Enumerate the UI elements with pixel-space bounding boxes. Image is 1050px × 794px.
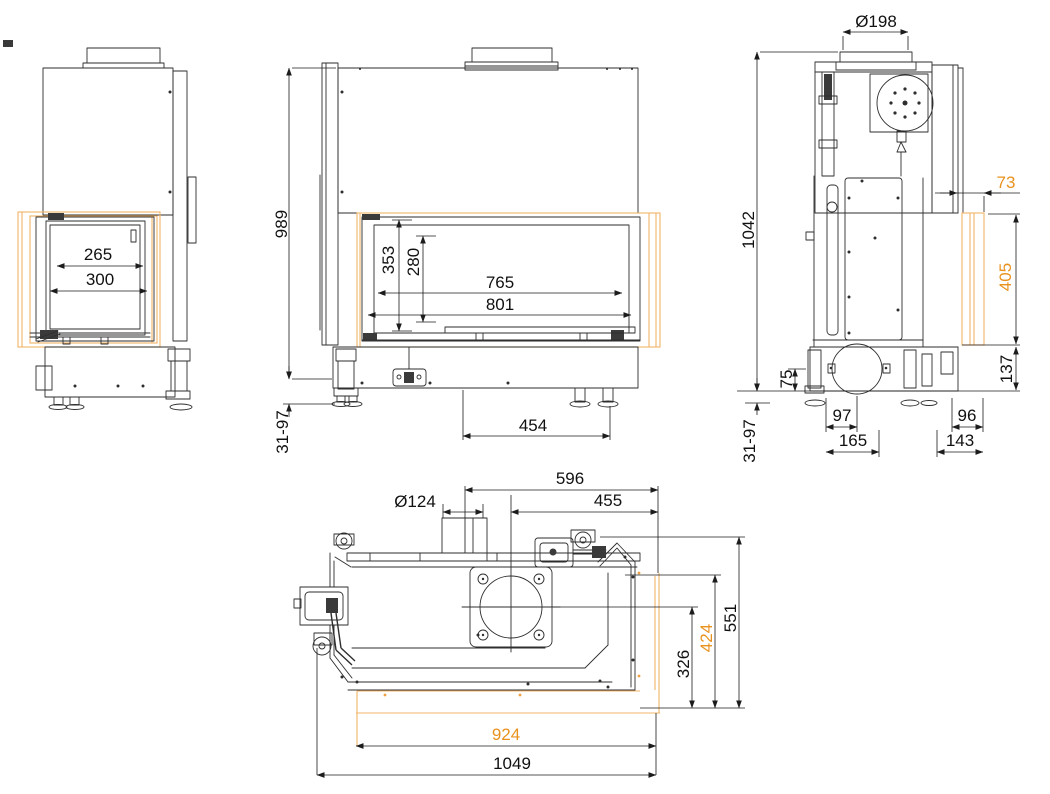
flue-stub: [472, 48, 552, 62]
foot: [921, 401, 937, 406]
dim-glass-offset: 73: [997, 173, 1016, 192]
base: [45, 347, 175, 397]
pulley: [336, 533, 352, 549]
right-end-plate: [598, 543, 635, 690]
logo-mark: [3, 40, 13, 47]
dim-total-depth: 551: [721, 604, 740, 632]
dim-leg-range: 31-97: [273, 410, 292, 453]
dim-glass-width: 265: [84, 245, 112, 264]
dim-frame-width: 300: [86, 270, 114, 289]
technical-drawing: 265 300: [0, 0, 1050, 794]
view-front: 989 31-97 353 280 765 801 454: [272, 48, 660, 454]
foot: [901, 400, 919, 406]
door-rail: [445, 327, 635, 333]
upper-body: [338, 68, 638, 213]
dim-total-height: 989: [272, 210, 291, 238]
pulley: [313, 637, 331, 655]
dim-rear-spacing: 143: [946, 431, 974, 450]
glass-highlight: [356, 572, 660, 746]
dim-glass-height: 280: [404, 248, 423, 276]
dim-flue-to-right: 455: [594, 491, 622, 510]
dim-rear-offset: 96: [958, 406, 977, 425]
view-left-side: 265 300: [3, 40, 196, 410]
dim-glass-width: 924: [492, 725, 520, 744]
dim-door-width: 801: [486, 295, 514, 314]
upper-body: [815, 62, 932, 213]
dim-flue-center-depth: 326: [674, 650, 693, 678]
dim-leg-range: 31-97: [740, 419, 759, 462]
dim-intake-height: 75: [777, 370, 796, 389]
dim-glass-width: 765: [486, 273, 514, 292]
dim-flue-diameter: Ø198: [855, 12, 897, 31]
pulley: [575, 532, 591, 548]
foot: [170, 404, 192, 410]
dim-base-height: 137: [997, 355, 1016, 383]
left-column: [322, 63, 338, 345]
dim-glass-depth: 424: [697, 624, 716, 652]
view-right-side: Ø198: [737, 12, 1020, 463]
rear-panel: [932, 65, 958, 213]
pulley: [897, 131, 906, 142]
flue-stub: [442, 518, 487, 553]
view-top: 596 455 Ø124 551 424 326 924 1049: [294, 469, 745, 775]
foot: [805, 400, 825, 406]
dim-intake-diameter: Ø124: [394, 492, 436, 511]
air-intake: [832, 344, 882, 394]
upper-body: [43, 68, 173, 215]
dim-foot-offset: 454: [519, 416, 547, 435]
flue-collar: [840, 52, 912, 62]
side-panel: [845, 178, 902, 340]
dim-total-width: 1049: [493, 754, 531, 773]
dim-total-height: 1042: [739, 211, 758, 249]
base: [333, 347, 638, 388]
dim-door-height: 353: [379, 246, 398, 274]
side-glass-highlight: [962, 213, 984, 345]
drawing-svg: 265 300: [0, 0, 1050, 794]
dim-flue-to-back: 596: [556, 469, 584, 488]
dim-side-glass-height: 405: [996, 263, 1015, 291]
dim-intake-spacing: 165: [839, 431, 867, 450]
dim-intake-offset: 97: [833, 406, 852, 425]
flue-stub: [87, 48, 160, 63]
